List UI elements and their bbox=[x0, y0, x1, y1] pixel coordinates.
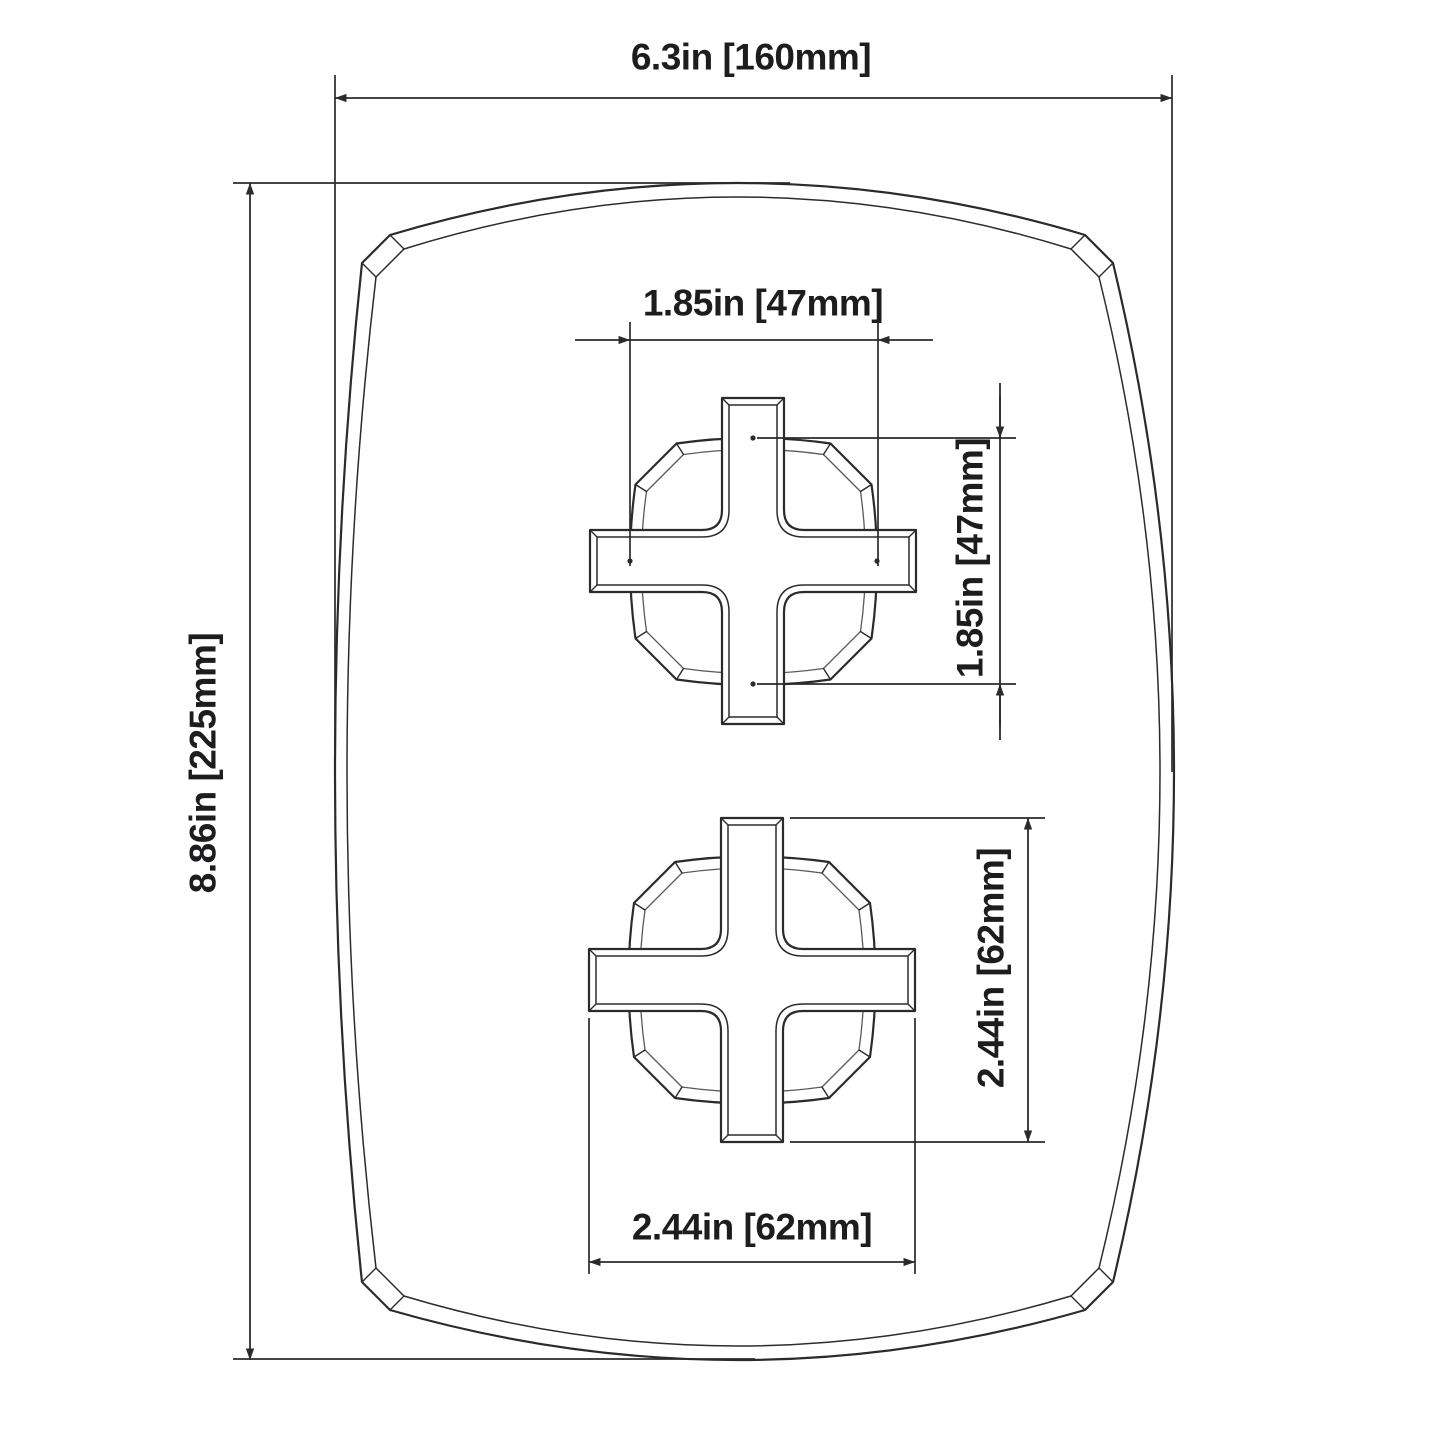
technical-drawing: 6.3in [160mm] 8.86in [225mm] 1.85in [47m… bbox=[0, 0, 1445, 1445]
trim-plate-outer-outline bbox=[335, 183, 1174, 1360]
dim-overall-height-label: 8.86in [225mm] bbox=[183, 633, 224, 893]
dim-upper-handle-height-label: 1.85in [47mm] bbox=[950, 438, 991, 678]
dim-upper-handle-width-label: 1.85in [47mm] bbox=[643, 283, 883, 324]
dim-lower-handle-width-label: 2.44in [62mm] bbox=[632, 1207, 872, 1248]
dim-lower-handle-height-label: 2.44in [62mm] bbox=[971, 848, 1012, 1088]
dim-upper-handle-height-mark-bottom bbox=[750, 681, 755, 686]
dim-upper-handle-height-mark-top bbox=[750, 435, 755, 440]
trim-plate bbox=[335, 183, 1174, 1360]
drawing-canvas: 6.3in [160mm] 8.86in [225mm] 1.85in [47m… bbox=[0, 0, 1445, 1445]
dim-overall-width-label: 6.3in [160mm] bbox=[631, 37, 871, 78]
dim-upper-handle-width-mark-right bbox=[874, 558, 879, 563]
dim-upper-handle-width-mark-left bbox=[627, 558, 632, 563]
